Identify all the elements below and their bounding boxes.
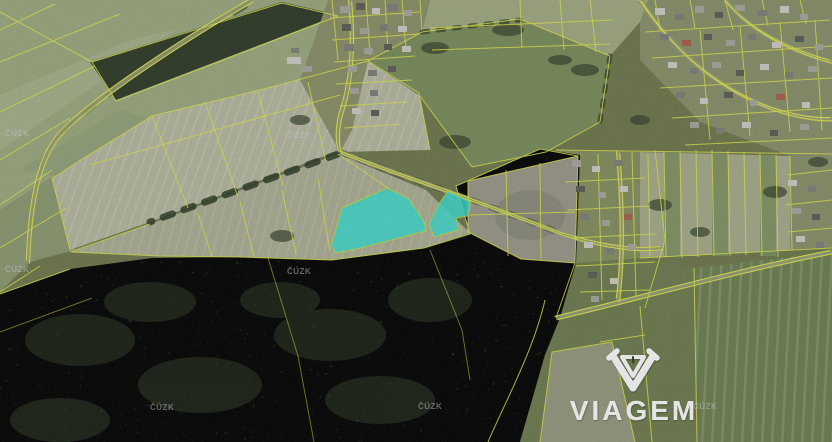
map-viewport[interactable]: ČÚZKČÚZKČÚZKČÚZKČÚZKČÚZKČÚZK VIAGEM <box>0 0 832 442</box>
noise-overlay-light <box>0 0 832 442</box>
